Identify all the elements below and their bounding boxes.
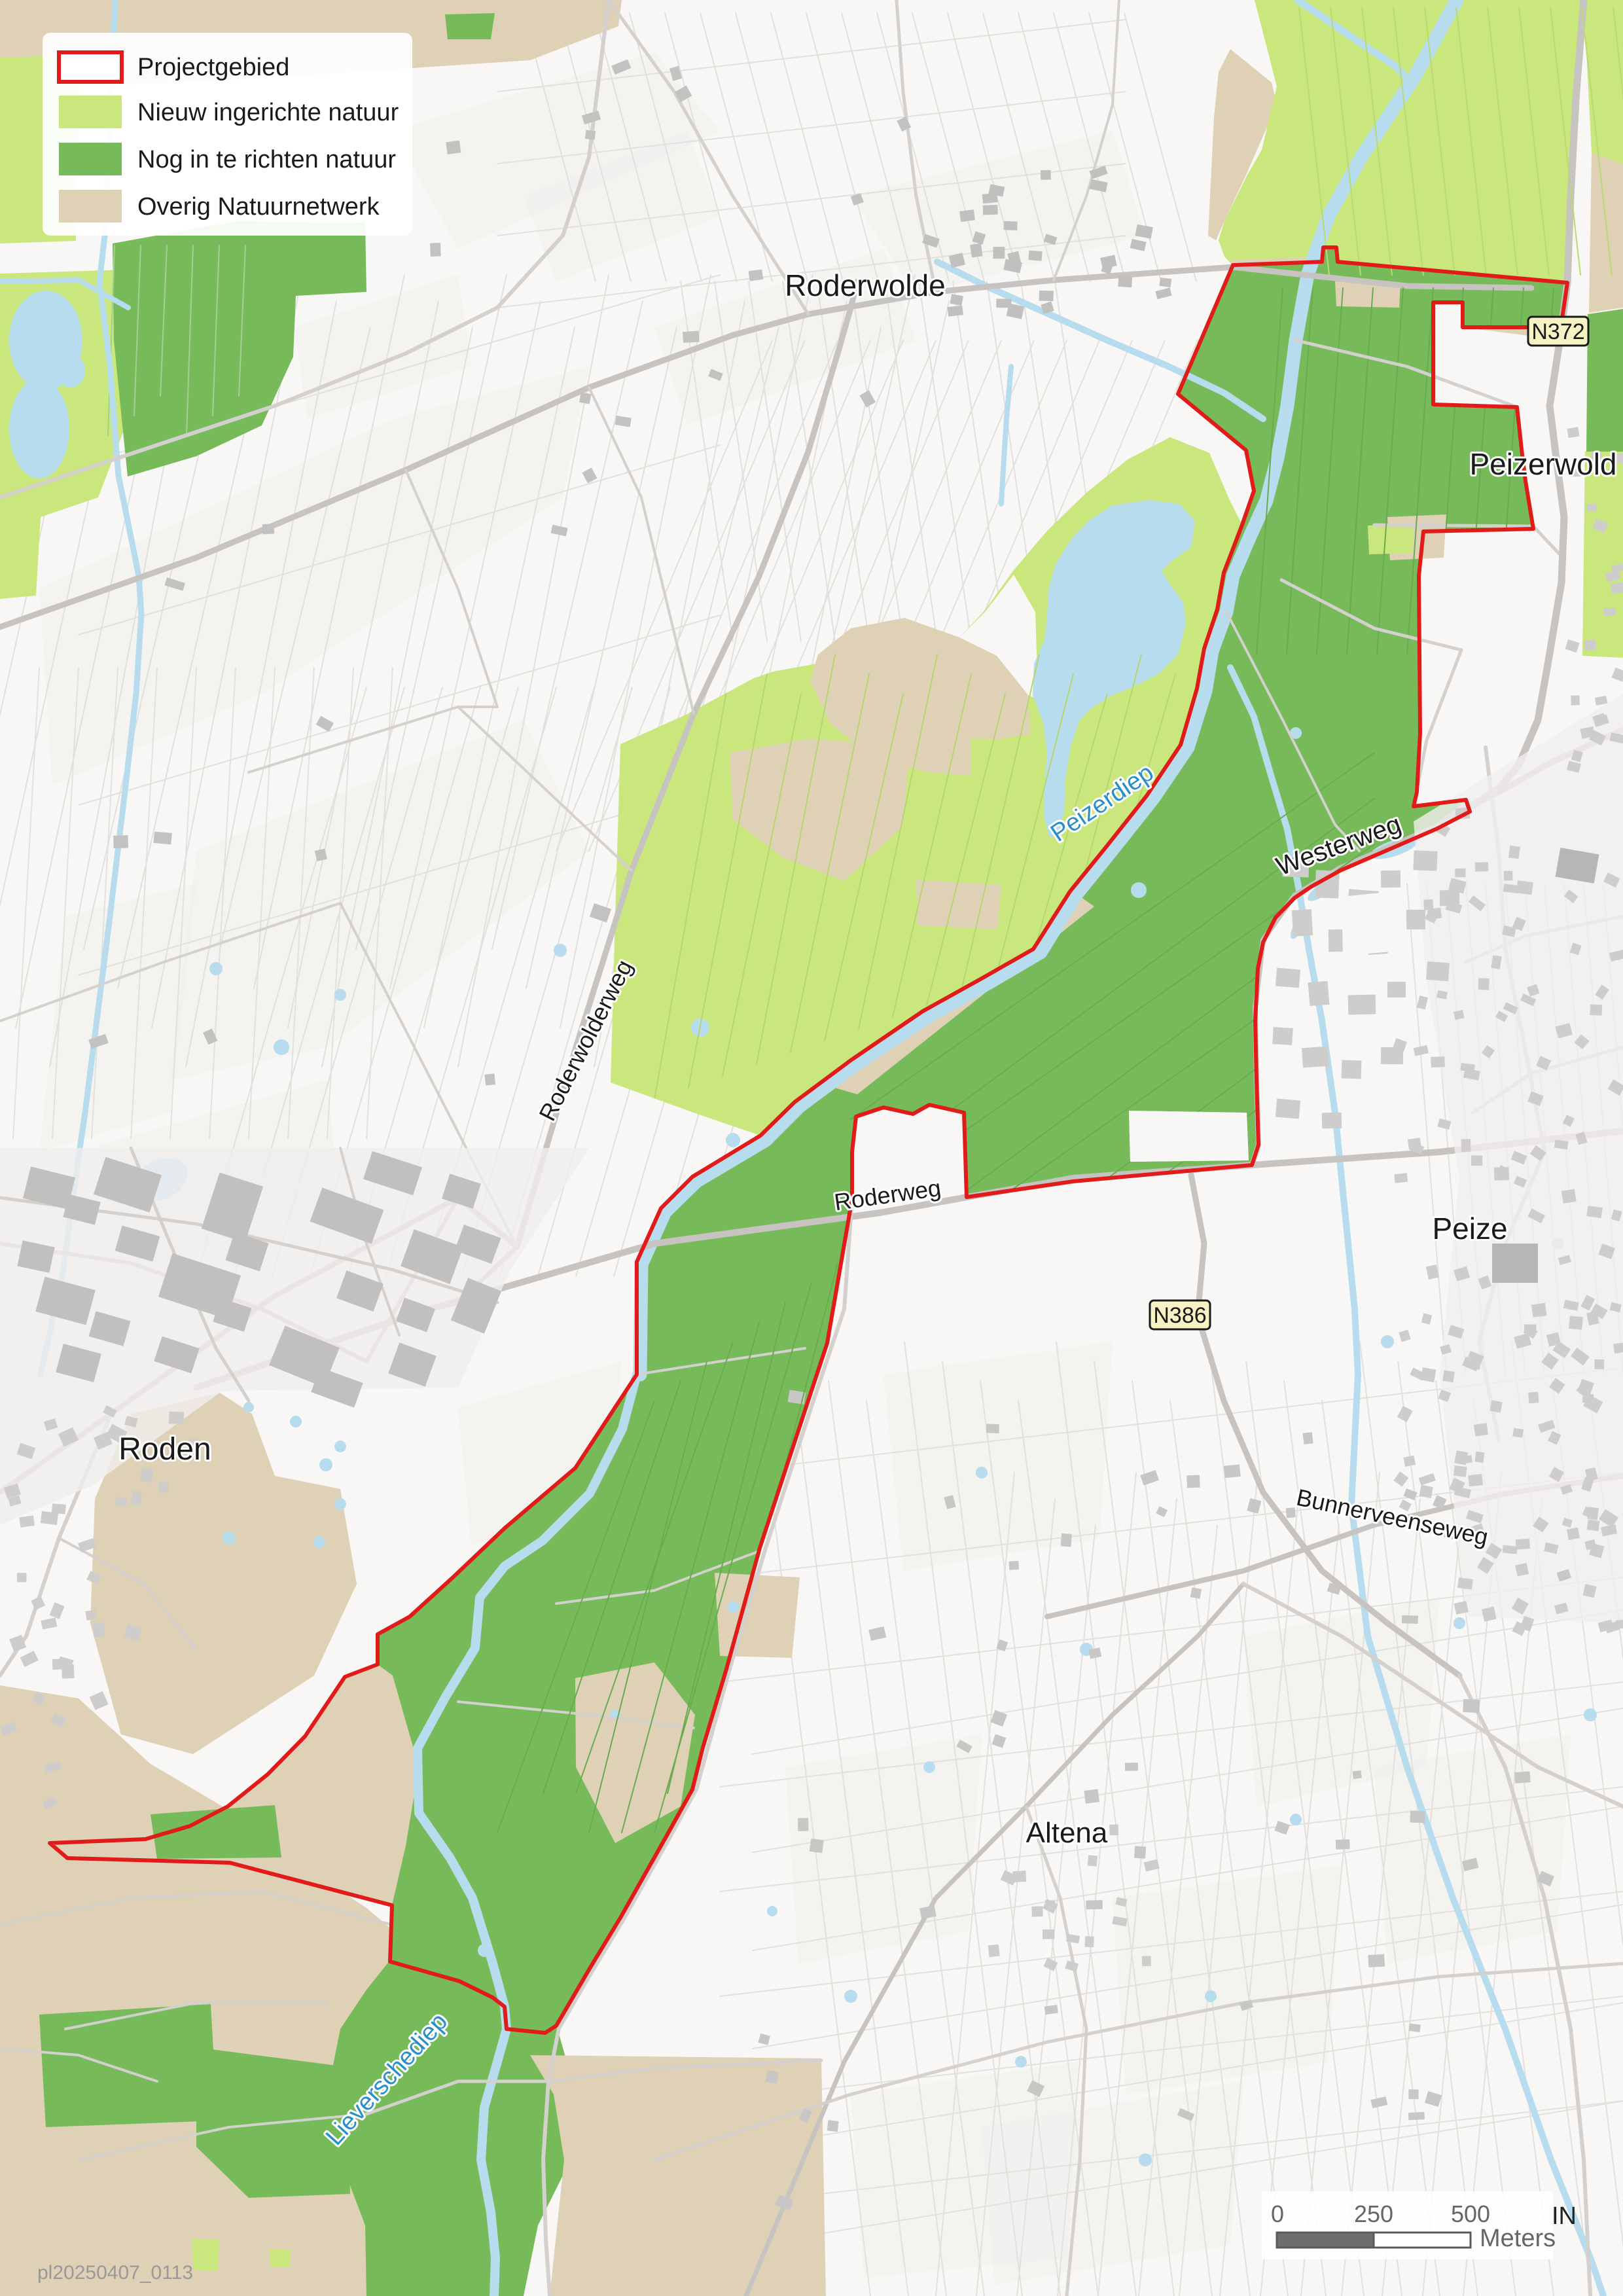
svg-text:Nog in te richten natuur: Nog in te richten natuur bbox=[137, 146, 396, 173]
svg-text:Peizerwold: Peizerwold bbox=[1470, 447, 1617, 481]
svg-text:500: 500 bbox=[1451, 2200, 1490, 2227]
svg-text:Altena: Altena bbox=[1026, 1817, 1108, 1849]
svg-text:N372: N372 bbox=[1531, 319, 1584, 344]
svg-text:Nieuw ingerichte natuur: Nieuw ingerichte natuur bbox=[137, 99, 399, 126]
svg-text:IN: IN bbox=[1552, 2202, 1577, 2230]
svg-text:0: 0 bbox=[1271, 2200, 1284, 2227]
svg-text:Roden: Roden bbox=[118, 1432, 211, 1467]
svg-text:Projectgebied: Projectgebied bbox=[137, 54, 289, 81]
svg-text:Meters: Meters bbox=[1480, 2225, 1556, 2252]
svg-text:250: 250 bbox=[1354, 2200, 1393, 2227]
svg-text:N386: N386 bbox=[1153, 1303, 1206, 1328]
svg-text:pl20250407_0113: pl20250407_0113 bbox=[37, 2262, 193, 2284]
svg-text:Overig Natuurnetwerk: Overig Natuurnetwerk bbox=[137, 193, 380, 221]
svg-text:Peize: Peize bbox=[1432, 1211, 1507, 1246]
svg-text:Roderwolde: Roderwolde bbox=[785, 268, 945, 302]
